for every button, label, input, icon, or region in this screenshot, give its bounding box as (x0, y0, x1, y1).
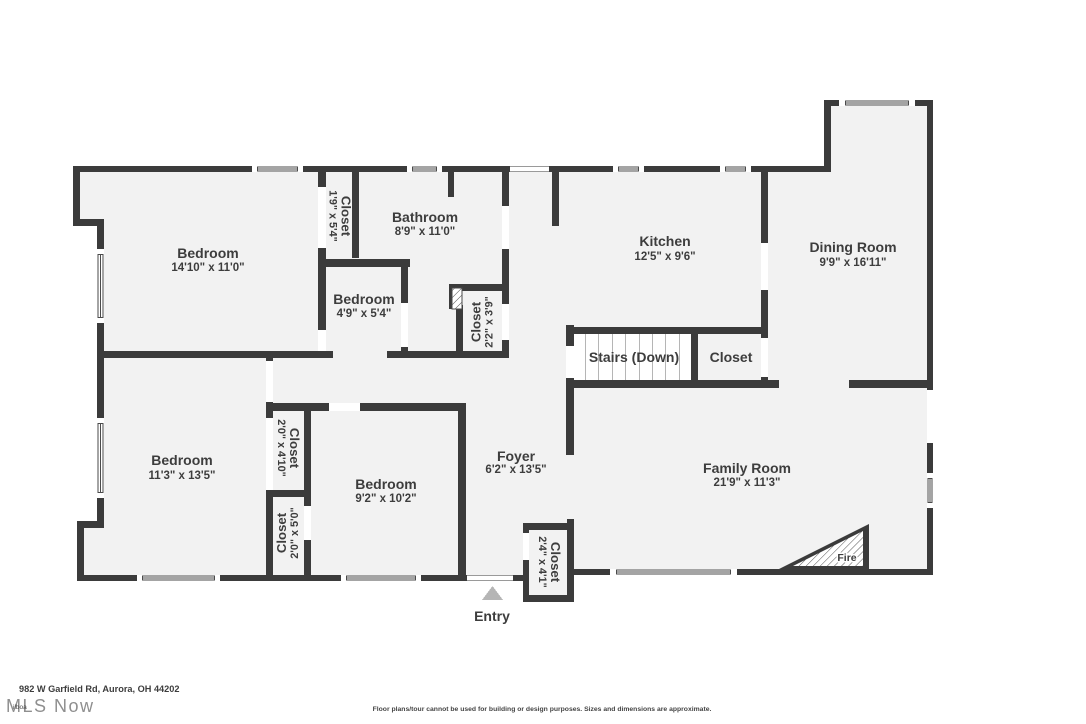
svg-text:2'0" x 5'0": 2'0" x 5'0" (289, 507, 301, 558)
svg-text:Bedroom: Bedroom (333, 291, 394, 307)
svg-text:Foyer: Foyer (497, 448, 536, 464)
svg-text:2'4" x 4'1": 2'4" x 4'1" (536, 536, 548, 587)
svg-text:Bedroom: Bedroom (151, 452, 212, 468)
svg-text:9'2" x 10'2": 9'2" x 10'2" (355, 493, 416, 505)
svg-text:Bedroom: Bedroom (355, 476, 416, 492)
svg-text:Fire: Fire (837, 552, 856, 564)
svg-text:12'5" x 9'6": 12'5" x 9'6" (634, 251, 695, 263)
svg-text:4'9" x 5'4": 4'9" x 5'4" (337, 308, 392, 320)
svg-text:Closet: Closet (339, 196, 354, 237)
svg-text:2'0" x 4'10": 2'0" x 4'10" (275, 419, 287, 476)
svg-text:8'9" x 11'0": 8'9" x 11'0" (395, 226, 456, 238)
svg-text:ilboa: ilboa (13, 704, 27, 711)
svg-text:Closet: Closet (274, 512, 289, 553)
svg-text:6'2" x 13'5": 6'2" x 13'5" (485, 464, 546, 476)
svg-text:14'10" x 11'0": 14'10" x 11'0" (171, 262, 244, 274)
svg-text:Entry: Entry (474, 608, 510, 624)
svg-text:Family Room: Family Room (703, 460, 791, 476)
svg-text:11'3" x 13'5": 11'3" x 13'5" (149, 470, 216, 482)
svg-text:1'9" x 5'4": 1'9" x 5'4" (327, 190, 339, 241)
svg-text:Bathroom: Bathroom (392, 209, 458, 225)
svg-text:Bedroom: Bedroom (177, 245, 238, 261)
svg-text:Dining Room: Dining Room (809, 239, 896, 255)
svg-text:2'2" x 3'9": 2'2" x 3'9" (484, 296, 496, 347)
svg-text:Kitchen: Kitchen (639, 233, 690, 249)
svg-text:Closet: Closet (287, 428, 302, 469)
svg-text:21'9" x 11'3": 21'9" x 11'3" (714, 477, 781, 489)
svg-text:9'9" x 16'11": 9'9" x 16'11" (820, 257, 887, 269)
svg-text:Closet: Closet (469, 301, 484, 342)
svg-text:Floor plans/tour cannot be use: Floor plans/tour cannot be used for buil… (373, 706, 712, 713)
svg-text:Closet: Closet (548, 542, 563, 583)
svg-text:Closet: Closet (710, 349, 753, 365)
svg-text:982 W Garfield Rd, Aurora, OH: 982 W Garfield Rd, Aurora, OH 44202 (19, 684, 180, 694)
svg-text:Stairs (Down): Stairs (Down) (589, 349, 679, 365)
